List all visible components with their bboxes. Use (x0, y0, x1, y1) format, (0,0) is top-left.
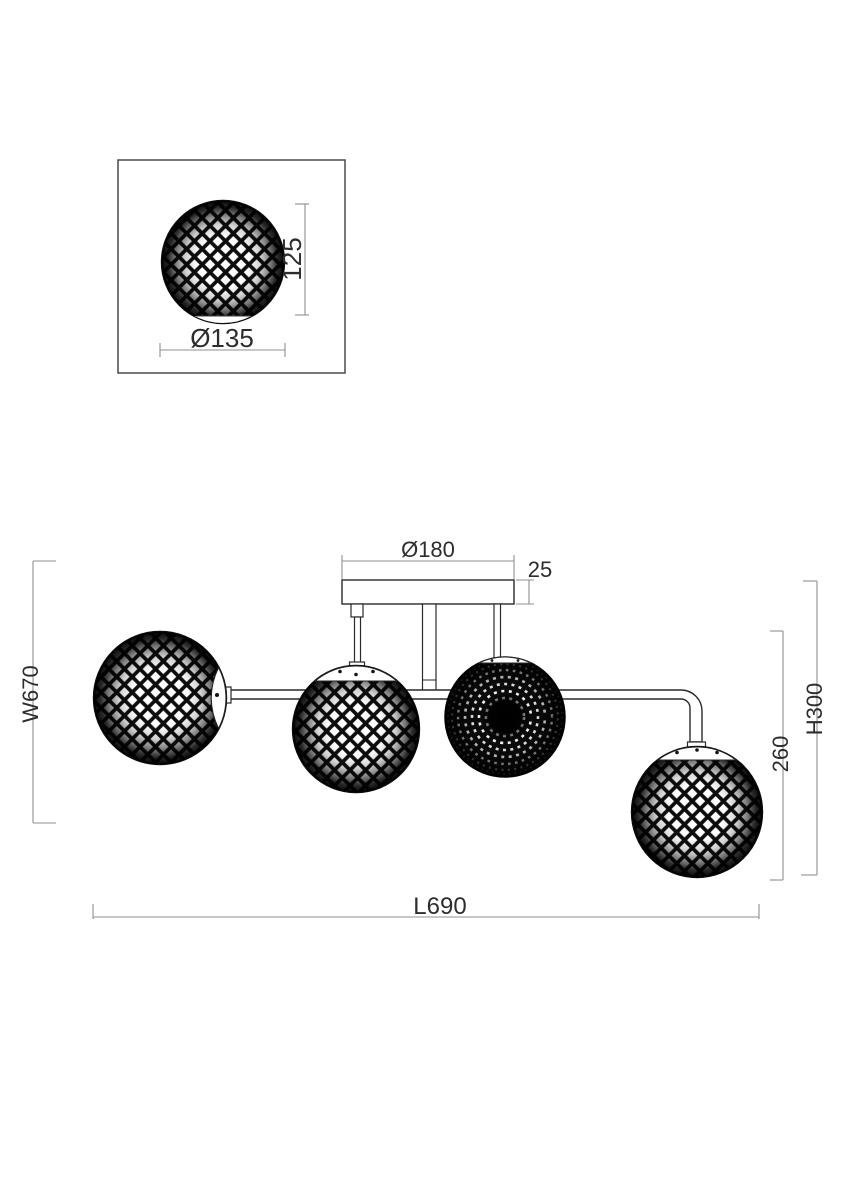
dim-width-label: W670 (18, 665, 43, 722)
dim-length-label: L690 (413, 893, 466, 920)
detail-globe-shading (162, 201, 284, 323)
stem-right (494, 604, 501, 659)
stem-center (423, 604, 437, 691)
dim-detail-height: 125 (277, 204, 309, 315)
dim-overall-height-label: H300 (802, 683, 827, 736)
ceiling-canopy (342, 580, 514, 604)
dim-length: L690 (93, 893, 759, 920)
dim-detail-diameter: Ø135 (160, 323, 285, 357)
dim-canopy-diameter: Ø180 (342, 537, 514, 579)
globe-4 (632, 747, 762, 877)
technical-drawing-page: 125 Ø135 (0, 0, 847, 1200)
ceiling-lamp-dimension-drawing: 125 Ø135 (0, 0, 847, 1200)
stem-left (350, 604, 365, 667)
globe-3-bottom-view (445, 657, 565, 777)
dim-canopy-thickness-label: 25 (528, 557, 552, 582)
dim-width: W670 (18, 561, 56, 823)
main-view: Ø180 25 W670 H300 260 (18, 537, 827, 920)
dim-drop-height-label: 260 (768, 736, 793, 773)
dim-canopy-thickness: 25 (516, 557, 552, 604)
globe-1-screw (215, 693, 219, 697)
dim-overall-height: H300 (801, 581, 827, 875)
detail-view: 125 Ø135 (118, 160, 345, 373)
dim-drop-height: 260 (768, 631, 793, 880)
detail-globe-bottom-opening (195, 316, 252, 323)
detail-globe (162, 201, 284, 323)
dim-detail-diameter-label: Ø135 (190, 323, 254, 353)
globe-3-cap-sliver (479, 657, 531, 663)
globe-1 (94, 632, 226, 764)
dim-detail-height-label: 125 (277, 237, 307, 280)
globe-2 (293, 666, 419, 792)
dim-canopy-diameter-label: Ø180 (401, 537, 455, 562)
